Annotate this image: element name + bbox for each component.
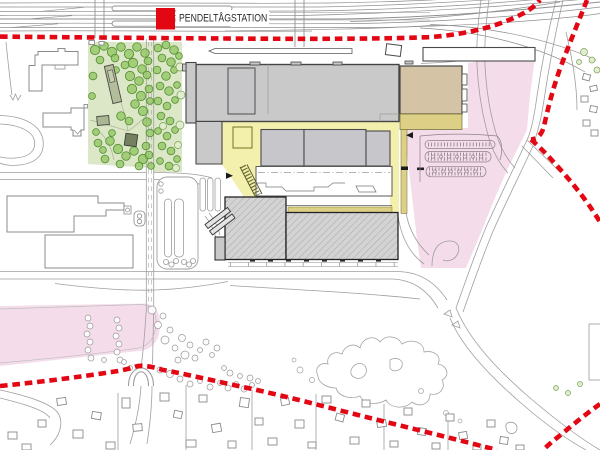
svg-text:PENDELTÅGSTATION: PENDELTÅGSTATION [179,13,267,25]
